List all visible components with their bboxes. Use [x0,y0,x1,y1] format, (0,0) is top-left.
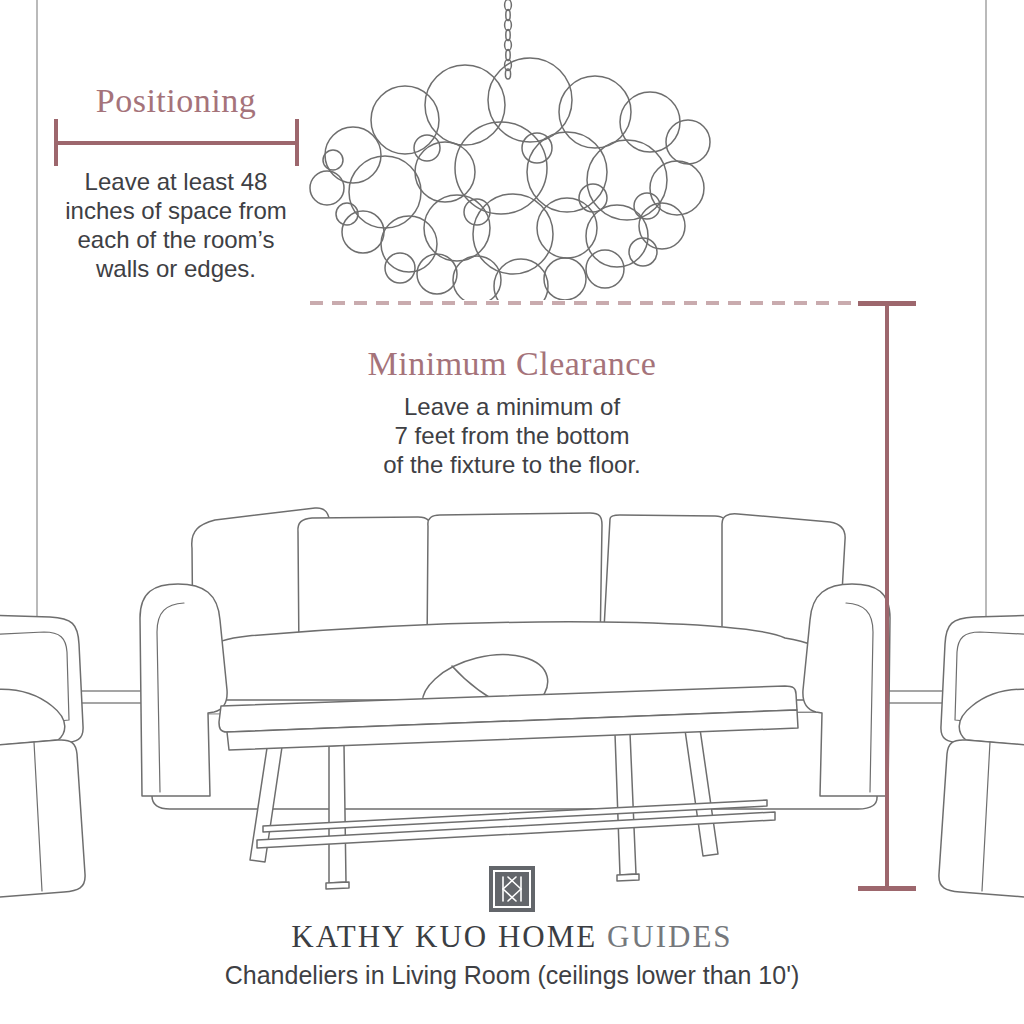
guide-caption: Chandeliers in Living Room (ceilings low… [0,961,1024,990]
ceiling-clearance-dashed-line [310,301,858,305]
positioning-measure-line [56,141,299,145]
clearance-measure-cap-top [858,301,916,306]
right-armchair-illustration [895,608,1024,908]
positioning-title: Positioning [26,82,326,119]
left-armchair-illustration [0,608,135,908]
right-wall-line [985,0,987,650]
positioning-description-line: walls or edges. [26,254,326,283]
coffee-table-bench-illustration [215,672,805,890]
kathy-kuo-home-monogram-icon [489,866,535,912]
positioning-description: Leave at least 48 inches of space from e… [26,167,326,283]
clearance-description-line: of the fixture to the floor. [262,450,762,479]
brand-wordmark: KATHY KUO HOME GUIDES [0,919,1024,955]
positioning-measure-tick-right [295,119,299,166]
clearance-description-line: 7 feet from the bottom [262,421,762,450]
positioning-description-line: each of the room’s [26,225,326,254]
clearance-title: Minimum Clearance [262,345,762,382]
brand-name: KATHY KUO HOME [291,919,597,954]
positioning-description-line: Leave at least 48 [26,167,326,196]
clearance-description: Leave a minimum of 7 feet from the botto… [262,392,762,479]
clearance-description-line: Leave a minimum of [262,392,762,421]
positioning-description-line: inches of space from [26,196,326,225]
brand-suffix: GUIDES [607,919,733,954]
positioning-measure-tick-left [54,119,58,166]
bubble-chandelier-illustration [305,0,715,300]
infographic-canvas: Positioning Leave at least 48 inches of … [0,0,1024,1024]
clearance-measure-line [885,303,889,889]
clearance-measure-cap-bottom [858,886,916,891]
